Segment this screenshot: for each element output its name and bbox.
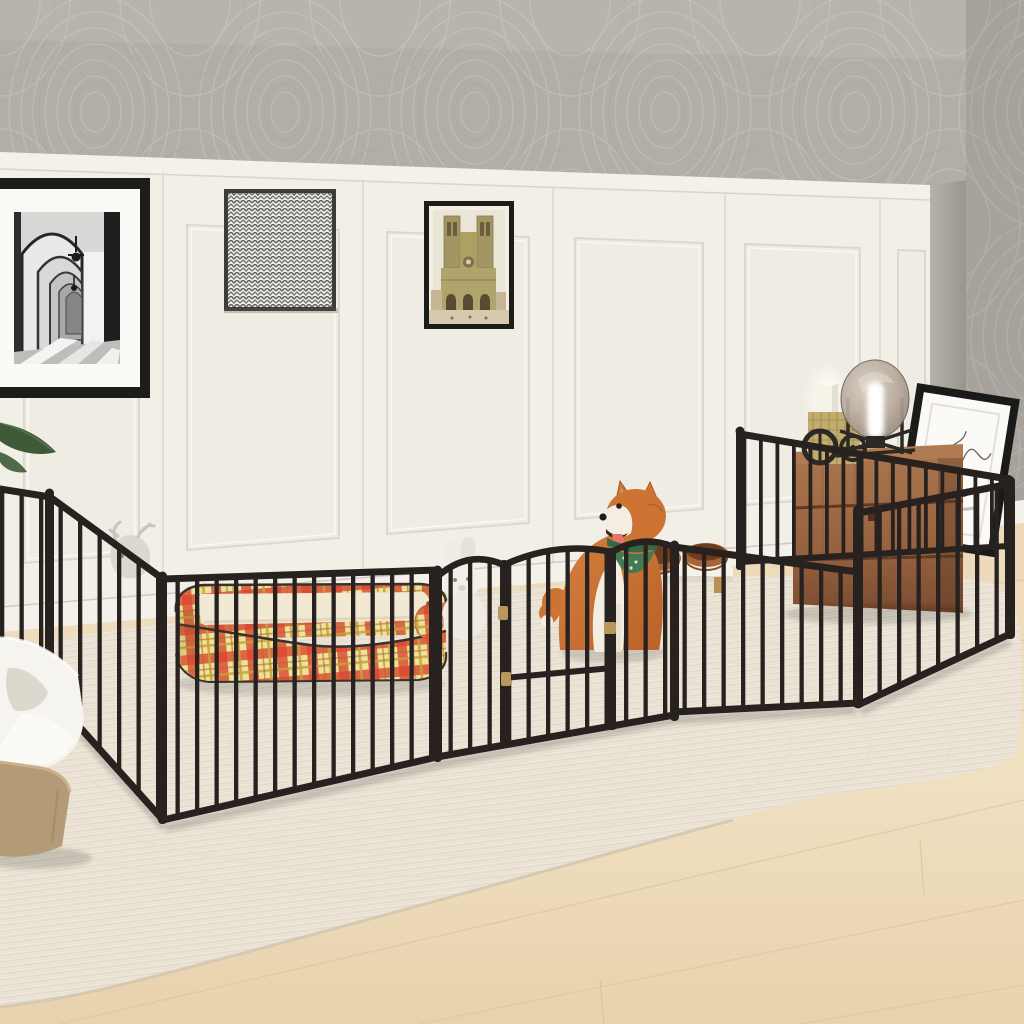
lamp-bulb: [867, 382, 884, 438]
cathedral-art-frame: [424, 201, 514, 329]
dog-nose: [599, 513, 606, 520]
dog-eye: [616, 503, 622, 509]
corridor-photo-frame: [0, 178, 150, 398]
gate-hinge-bottom: [501, 672, 511, 686]
corridor-photo: [14, 212, 120, 366]
fence-panel-front-right: [674, 547, 858, 712]
gate-latch[interactable]: [604, 622, 616, 634]
cathedral-painting: [429, 210, 509, 324]
product-photo-scene: Black metal pet playpen, 16-panel with a…: [0, 0, 1024, 1024]
scene-canvas: [0, 0, 1024, 1024]
gate-hinge-top: [498, 606, 508, 620]
chevron-art-frame: [224, 189, 338, 313]
